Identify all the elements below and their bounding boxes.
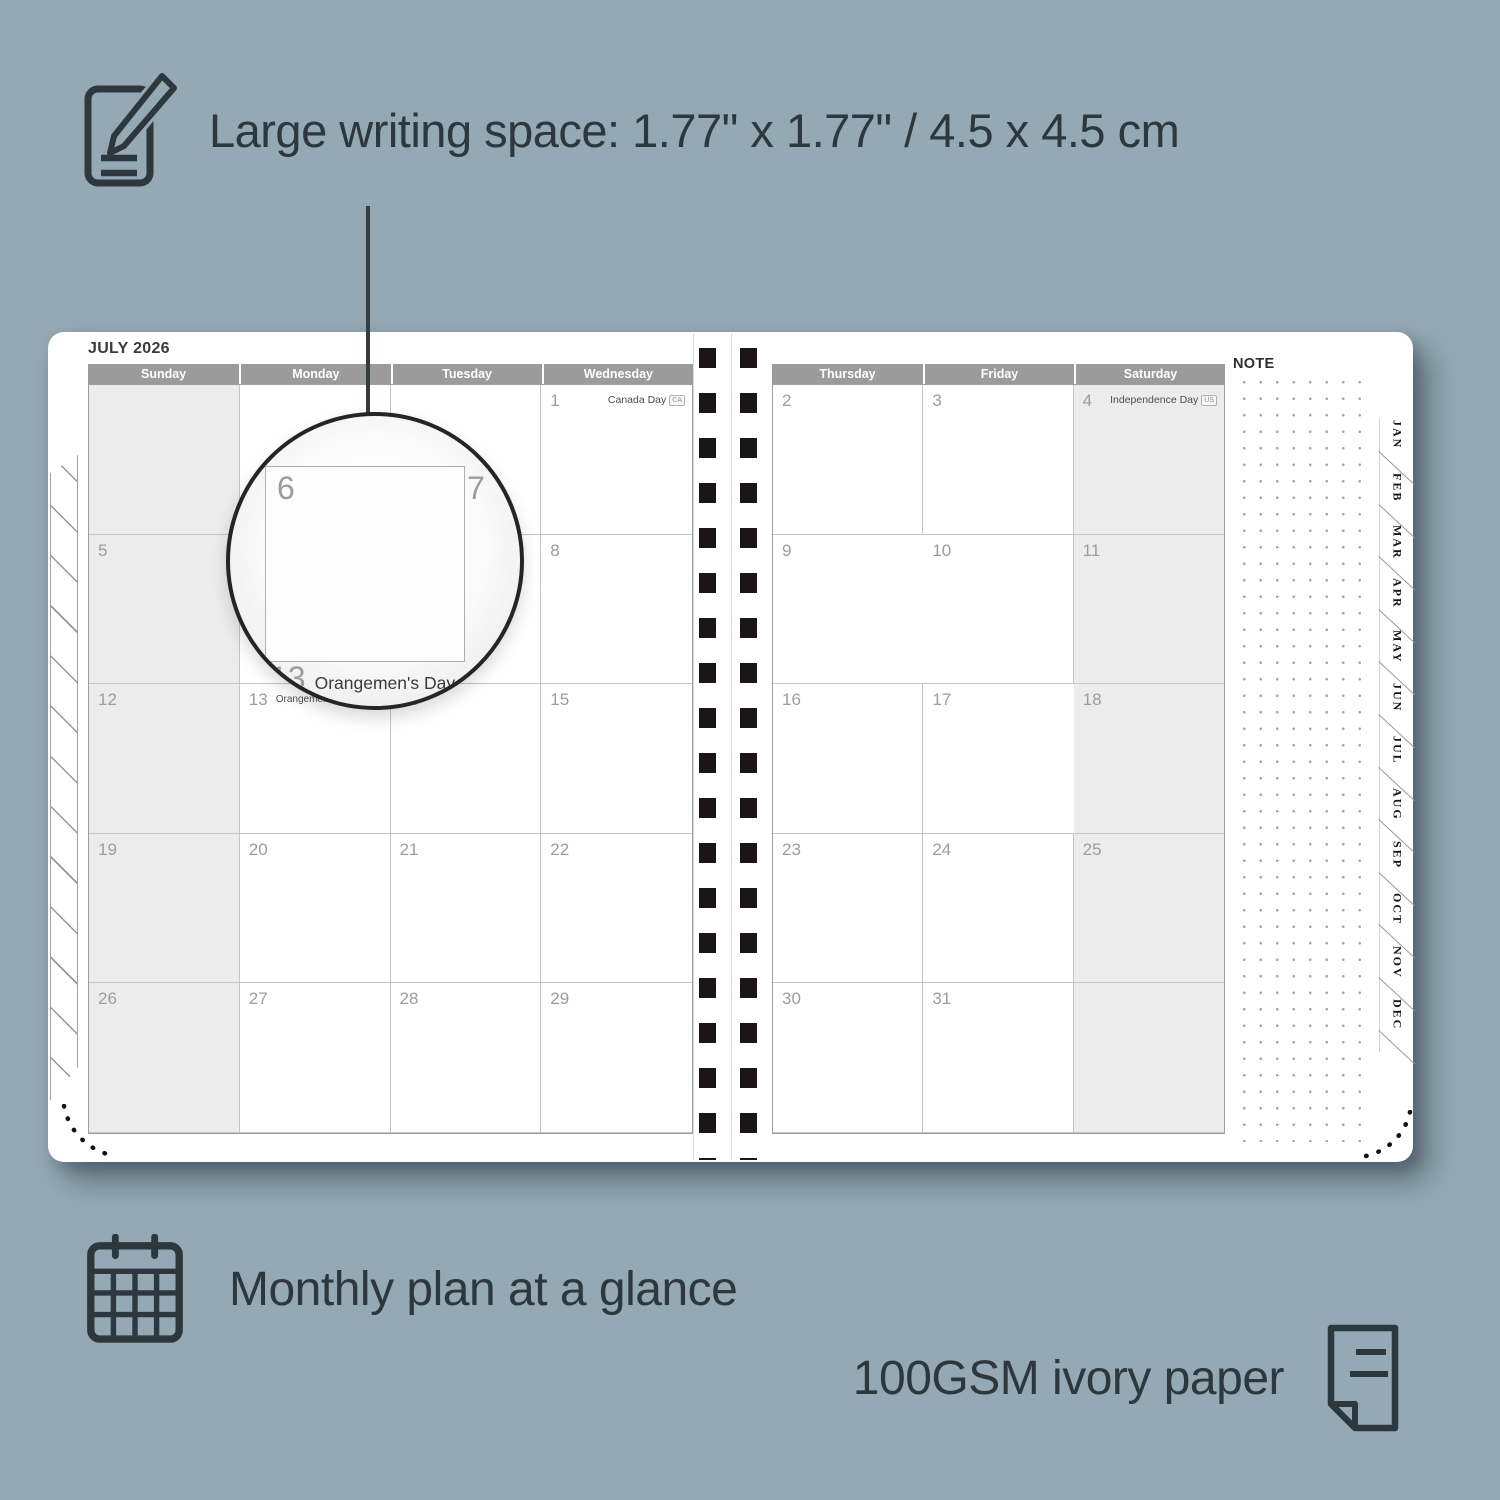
calendar-cell: 24	[923, 834, 1073, 984]
calendar-cell: 1Canada DayCA	[541, 385, 692, 535]
note-dot-grid	[1236, 374, 1366, 1142]
day-number: 20	[249, 840, 268, 860]
magnified-holiday-label: Orangemen's Day (n.i.)	[315, 673, 495, 694]
day-number: 13	[249, 690, 268, 710]
month-tab-label: APR	[1390, 578, 1405, 609]
calendar-cell: 10	[923, 535, 1073, 685]
day-number: 28	[400, 989, 419, 1009]
day-header-tuesday: Tuesday	[391, 364, 542, 384]
calendar-cell: 21	[391, 834, 542, 984]
page-seam	[693, 334, 694, 1160]
month-tab-label: NOV	[1390, 946, 1405, 979]
left-day-header-row: SundayMondayTuesdayWednesday	[88, 364, 693, 384]
day-number: 19	[98, 840, 117, 860]
calendar-cell: 5	[89, 535, 240, 685]
month-tab-label: MAY	[1390, 630, 1405, 664]
day-number: 10	[932, 541, 951, 561]
day-number: 30	[782, 989, 801, 1009]
calendar-cell: 27	[240, 983, 391, 1133]
day-number: 23	[782, 840, 801, 860]
day-number: 11	[1083, 541, 1101, 561]
month-tab-apr: APR	[1380, 576, 1414, 629]
calendar-cell: 16	[773, 684, 923, 834]
month-title: JULY 2026	[88, 340, 170, 358]
calendar-cell: 12	[89, 684, 240, 834]
day-number: 18	[1083, 690, 1102, 710]
magnified-writing-space	[265, 466, 465, 662]
magnified-day-number: 7	[467, 470, 485, 507]
month-tab-label: MAR	[1390, 525, 1405, 560]
month-tab-may: MAY	[1380, 628, 1414, 681]
calendar-cell: 19	[89, 834, 240, 984]
country-badge: US	[1201, 395, 1217, 406]
day-number: 16	[782, 690, 801, 710]
day-header-wednesday: Wednesday	[542, 364, 693, 384]
month-tab-jun: JUN	[1380, 681, 1414, 734]
calendar-cell: 17	[923, 684, 1073, 834]
day-number: 27	[249, 989, 268, 1009]
calendar-grid-icon	[85, 1234, 185, 1344]
product-image: Large writing space: 1.77" x 1.77" / 4.5…	[0, 0, 1500, 1500]
day-number: 29	[550, 989, 569, 1009]
calendar-cell: 29	[541, 983, 692, 1133]
day-number: 12	[98, 690, 117, 710]
calendar-cell: 4Independence DayUS	[1074, 385, 1224, 535]
day-number: 25	[1083, 840, 1102, 860]
calendar-cell: 30	[773, 983, 923, 1133]
calendar-cell: 23	[773, 834, 923, 984]
day-header-sunday: Sunday	[88, 364, 239, 384]
calendar-cell	[1074, 983, 1224, 1133]
day-number: 26	[98, 989, 117, 1009]
day-number: 24	[932, 840, 951, 860]
month-tab-feb: FEB	[1380, 471, 1414, 524]
month-tab-label: AUG	[1390, 788, 1405, 821]
right-day-header-row: ThursdayFridaySaturday	[772, 364, 1225, 384]
month-tab-mar: MAR	[1380, 523, 1414, 576]
calendar-cell	[89, 385, 240, 535]
day-number: 1	[550, 391, 559, 411]
day-header-thursday: Thursday	[772, 364, 923, 384]
day-number: 15	[550, 690, 569, 710]
magnified-day-number: 13	[270, 660, 306, 697]
day-number: 3	[932, 391, 941, 411]
calendar-cell: 28	[391, 983, 542, 1133]
calendar-cell: 15	[541, 684, 692, 834]
month-tab-label: DEC	[1390, 999, 1405, 1030]
paper-text: 100GSM ivory paper	[853, 1351, 1284, 1406]
month-tab-label: FEB	[1390, 473, 1405, 502]
month-tab-label: JUN	[1390, 683, 1405, 712]
right-calendar-grid: 234Independence DayUS9101116171823242530…	[772, 384, 1225, 1134]
day-number: 2	[782, 391, 791, 411]
month-tab-sep: SEP	[1380, 839, 1414, 892]
month-tab-strip: JANFEBMARAPRMAYJUNJULAUGSEPOCTNOVDEC	[1379, 418, 1414, 1052]
writing-space-text: Large writing space: 1.77" x 1.77" / 4.5…	[209, 103, 1179, 158]
day-number: 31	[932, 989, 951, 1009]
calendar-cell: 22	[541, 834, 692, 984]
tab-separator	[1378, 1030, 1415, 1064]
day-header-friday: Friday	[923, 364, 1074, 384]
month-tab-nov: NOV	[1380, 944, 1414, 997]
magnified-holiday-row: 13 Orangemen's Day (n.i.) UK	[270, 660, 524, 697]
calendar-cell: 14	[391, 684, 542, 834]
day-number: 22	[550, 840, 569, 860]
corner-dotted-arc	[60, 1104, 122, 1162]
calendar-cell: 3	[923, 385, 1073, 535]
day-number: 21	[400, 840, 419, 860]
calendar-cell: 9	[773, 535, 923, 685]
magnifier-circle: 6 7 13 Orangemen's Day (n.i.) UK	[226, 412, 524, 710]
calendar-cell: 8	[541, 535, 692, 685]
day-header-saturday: Saturday	[1074, 364, 1225, 384]
calendar-cell: 31	[923, 983, 1073, 1133]
day-number: 17	[932, 690, 951, 710]
paper-sheet-icon	[1318, 1322, 1408, 1434]
month-tab-label: OCT	[1390, 893, 1405, 925]
page-seam	[731, 334, 732, 1160]
month-tab-label: JUL	[1390, 736, 1405, 765]
paper-annotation: 100GSM ivory paper	[853, 1322, 1408, 1434]
month-tab-jul: JUL	[1380, 734, 1414, 787]
calendar-cell: 25	[1074, 834, 1224, 984]
holiday-label: Canada DayCA	[608, 394, 685, 406]
holiday-label: Independence DayUS	[1110, 394, 1217, 406]
day-number: 9	[782, 541, 791, 561]
note-label: NOTE	[1233, 356, 1274, 372]
spiral-binding-holes	[740, 348, 757, 1160]
monthly-plan-text: Monthly plan at a glance	[229, 1262, 737, 1317]
calendar-cell: 2	[773, 385, 923, 535]
callout-line	[366, 206, 370, 416]
pencil-note-icon	[83, 72, 183, 188]
month-tab-label: JAN	[1390, 420, 1405, 449]
day-number: 8	[550, 541, 559, 561]
calendar-cell: 18	[1074, 684, 1224, 834]
month-tab-aug: AUG	[1380, 786, 1414, 839]
month-tab-oct: OCT	[1380, 891, 1414, 944]
planner-spread: JULY 2026 SundayMondayTuesdayWednesday 1…	[48, 332, 1413, 1162]
magnified-day-number: 6	[277, 470, 295, 507]
page-edge-hatch	[50, 455, 78, 1107]
month-tab-label: SEP	[1390, 841, 1405, 869]
day-number: 4	[1083, 391, 1092, 411]
calendar-cell: 20	[240, 834, 391, 984]
month-tab-dec: DEC	[1380, 997, 1414, 1050]
spiral-binding-holes	[699, 348, 716, 1160]
calendar-cell: 11	[1074, 535, 1224, 685]
writing-space-annotation: Large writing space: 1.77" x 1.77" / 4.5…	[83, 72, 1179, 188]
corner-dotted-arc	[1364, 1110, 1414, 1160]
country-badge: CA	[669, 395, 685, 406]
month-tab-jan: JAN	[1380, 418, 1414, 471]
monthly-plan-annotation: Monthly plan at a glance	[85, 1234, 737, 1344]
day-number: 5	[98, 541, 107, 561]
